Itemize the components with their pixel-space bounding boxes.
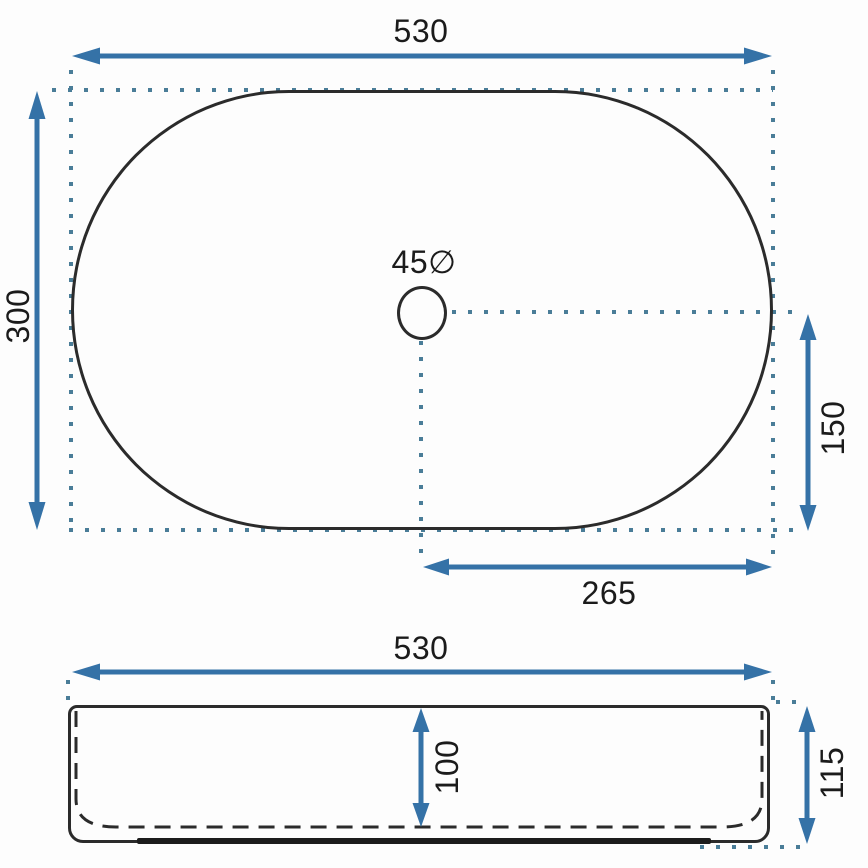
dim-arrow-overall-height bbox=[797, 706, 817, 844]
dim-arrow-inner-depth bbox=[411, 708, 431, 827]
dim-arrow-drain-offset-horizontal bbox=[423, 557, 772, 577]
dim-arrow-top-width bbox=[72, 46, 772, 66]
dim-label-drain-offset-horizontal: 265 bbox=[559, 574, 659, 612]
dim-arrow-top-height bbox=[27, 91, 47, 530]
basin-base-bar bbox=[137, 838, 711, 844]
dim-label-top-width: 530 bbox=[371, 12, 471, 50]
dim-label-drain-diameter: 45∅ bbox=[374, 243, 474, 281]
dotted-connector-side-right bbox=[771, 680, 775, 703]
basin-dimension-drawing: 530 300 45∅ 150 265 530 bbox=[0, 0, 868, 868]
dim-label-inner-depth: 100 bbox=[425, 712, 469, 822]
dotted-connector-side-left bbox=[66, 680, 70, 703]
dim-arrow-side-width bbox=[72, 662, 772, 682]
dotted-connector-side-bottom-right bbox=[700, 845, 804, 849]
drain-hole bbox=[397, 286, 447, 340]
dim-arrow-drain-offset-vertical bbox=[798, 314, 818, 531]
dotted-connector-side-top-right bbox=[776, 700, 808, 704]
